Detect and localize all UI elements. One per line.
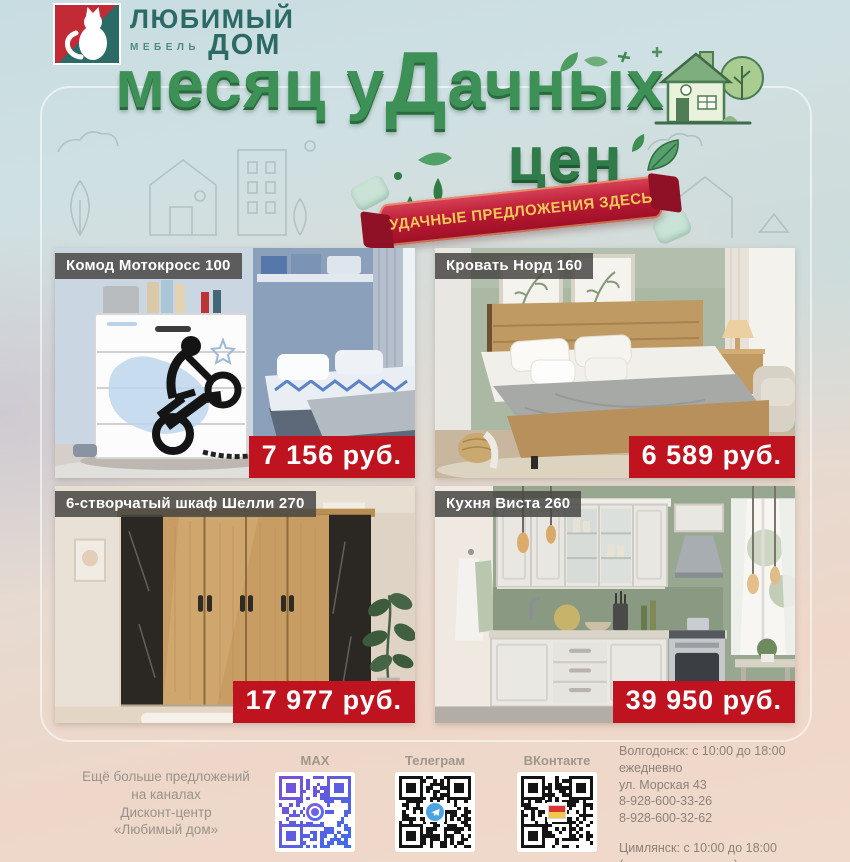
product-price: 39 950 руб. xyxy=(613,681,795,723)
telegram-icon xyxy=(426,803,444,821)
product-price: 17 977 руб. xyxy=(233,681,415,723)
product-name-label: 6-створчатый шкаф Шелли 270 xyxy=(55,491,316,517)
qr-block-max[interactable]: MAX xyxy=(267,753,363,852)
phone-number: 8-928-600-33-26 xyxy=(619,793,786,810)
qr-code-max[interactable] xyxy=(275,772,355,852)
contacts: Волгодонск: с 10:00 до 18:00 ежедневно у… xyxy=(619,743,786,862)
product-name-label: Кухня Виста 260 xyxy=(435,491,581,517)
promo-flyer: ЛЮБИМЫЙ МЕБЕЛЬ ДОМ месяц уДачных цен xyxy=(0,0,850,862)
vk-logo-icon xyxy=(548,805,566,819)
product-price: 6 589 руб. xyxy=(629,436,795,478)
qr-code-telegram[interactable] xyxy=(395,772,475,852)
more-offers-text: Ещё больше предложений на каналах Дискон… xyxy=(57,768,275,839)
product-name-label: Кровать Норд 160 xyxy=(435,253,593,279)
qr-label-telegram: Телеграм xyxy=(387,753,483,768)
product-card-komod-motokross[interactable]: Комод Мотокросс 100 7 156 руб. xyxy=(55,248,415,478)
contact-volgodonsk: Волгодонск: с 10:00 до 18:00 ежедневно у… xyxy=(619,743,786,827)
product-price: 7 156 руб. xyxy=(249,436,415,478)
product-card-shkaf-shelli[interactable]: 6-створчатый шкаф Шелли 270 17 977 руб. xyxy=(55,486,415,723)
qr-block-telegram[interactable]: Телеграм xyxy=(387,753,483,852)
contact-tsimlyansk: Цимлянск: с 10:00 до 18:00 (пн, вт — вых… xyxy=(619,840,786,862)
qr-code-vkontakte[interactable] xyxy=(517,772,597,852)
product-card-kuhnya-vista[interactable]: Кухня Виста 260 39 950 руб. xyxy=(435,486,795,723)
qr-label-vkontakte: ВКонтакте xyxy=(509,753,605,768)
hero-title-line1: месяц уДачных xyxy=(105,50,675,117)
product-card-krovat-nord[interactable]: Кровать Норд 160 6 589 руб. xyxy=(435,248,795,478)
max-messenger-icon xyxy=(306,803,324,821)
qr-block-vkontakte[interactable]: ВКонтакте xyxy=(509,753,605,852)
product-name-label: Комод Мотокросс 100 xyxy=(55,253,242,279)
qr-label-max: MAX xyxy=(267,753,363,768)
phone-number: 8-928-600-32-62 xyxy=(619,810,786,827)
